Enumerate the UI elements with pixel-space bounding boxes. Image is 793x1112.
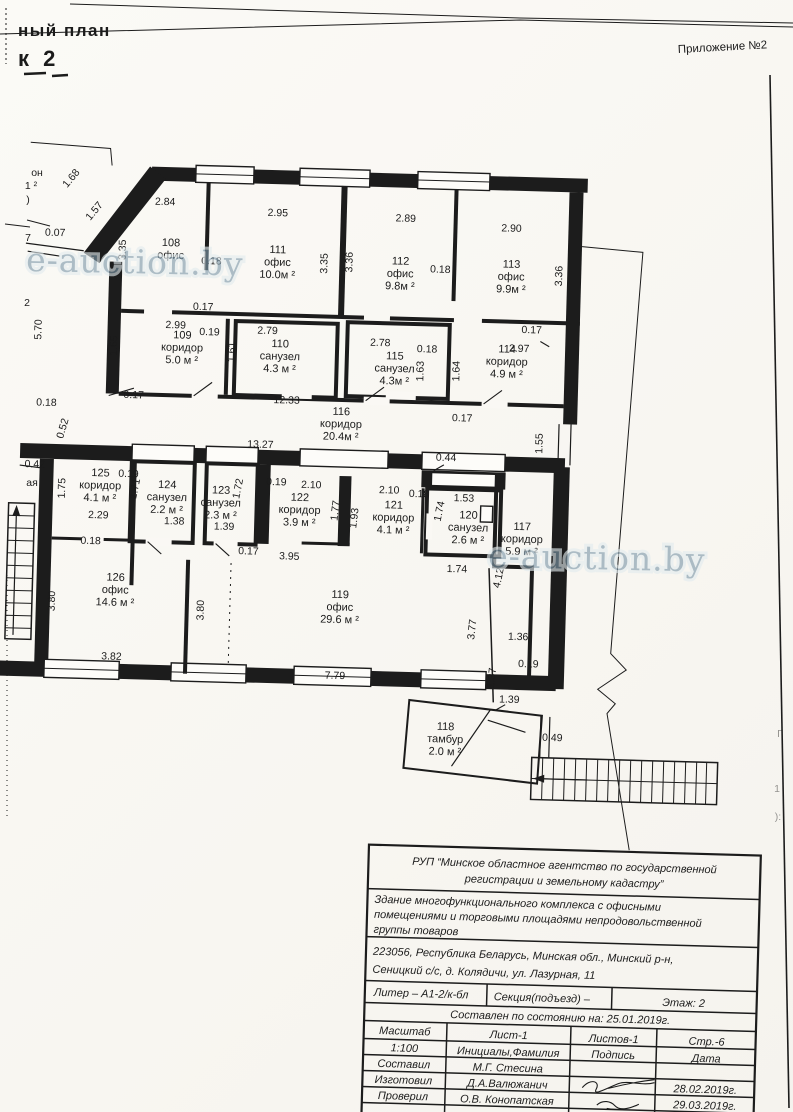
dimension-label: 0.18 bbox=[80, 535, 101, 548]
room-label-120: санузел bbox=[448, 522, 489, 535]
room-label-115: 115 bbox=[386, 350, 404, 362]
page-title-fragment: ный план bbox=[18, 21, 111, 40]
dimension-label: 2.10 bbox=[379, 484, 400, 497]
dimension-label: 1.74 bbox=[447, 563, 468, 576]
titleblock-col-signature: Подпись bbox=[591, 1049, 635, 1062]
dimension-label: 0.49 bbox=[542, 732, 563, 745]
room-label-124: 124 bbox=[158, 479, 177, 492]
page-header: ный план к 2 Приложение №2 bbox=[18, 21, 767, 76]
room-label-109: 5.0 м ² bbox=[165, 354, 198, 367]
dimension-label: 0.52 bbox=[54, 417, 71, 440]
room-label-121: 121 bbox=[384, 499, 403, 512]
room-label-119: 119 bbox=[331, 589, 349, 601]
dimension-label: 1.53 bbox=[454, 492, 475, 505]
room-label-110: 4.3 м ² bbox=[263, 363, 296, 376]
dimension-label: 0.17 bbox=[123, 389, 144, 402]
room-label-122: 3.9 м ² bbox=[283, 516, 316, 529]
titleblock-address-line2: Сеницкий с/с, д. Колядичи, ул. Лазурная,… bbox=[372, 964, 595, 982]
room-label-113: 113 bbox=[503, 258, 521, 270]
scan-crease-line bbox=[0, 20, 793, 34]
room-label-119: 29.6 м ² bbox=[320, 613, 359, 626]
dimension-label: 1.39 bbox=[499, 694, 520, 707]
edge-fragment: ая bbox=[26, 477, 38, 489]
room-label-123: санузел bbox=[200, 497, 241, 510]
dimension-label: 1.93 bbox=[347, 507, 361, 529]
room-label-115: санузел bbox=[374, 362, 415, 375]
dimension-label: 0.17 bbox=[193, 301, 214, 314]
page-number-fragment: к 2 bbox=[18, 46, 59, 71]
titleblock-floor: Этаж: 2 bbox=[662, 997, 705, 1010]
titleblock-scale-value: 1:100 bbox=[390, 1042, 419, 1055]
dimension-label: 1.37 bbox=[485, 667, 499, 689]
edge-wall-fragments bbox=[5, 220, 50, 227]
dimension-label: 2.78 bbox=[370, 337, 391, 350]
dimension-label: 1.61 bbox=[226, 341, 239, 362]
dimension-label: 2.29 bbox=[88, 509, 109, 522]
watermark-text: e-auction.by bbox=[488, 536, 706, 580]
dimension-label: 1.36 bbox=[508, 631, 529, 644]
page-edge-line bbox=[770, 75, 789, 1108]
dimension-label: 0.18 bbox=[36, 396, 57, 409]
room-label-121: 4.1 м ² bbox=[377, 524, 410, 537]
room-label-126: офис bbox=[102, 584, 130, 597]
room-label-125: 4.1 м ² bbox=[83, 492, 116, 505]
dimension-label: 0.17 bbox=[238, 545, 259, 558]
titleblock-role-2: Изготовил bbox=[374, 1074, 432, 1088]
room-label-113: офис bbox=[498, 271, 526, 284]
dimension-label: 2.90 bbox=[501, 222, 522, 235]
edge-fragment: 2 bbox=[24, 297, 30, 309]
edge-fragment: 1 ² bbox=[25, 180, 38, 192]
titleblock-building-line3: группы товаров bbox=[373, 924, 458, 938]
dimension-label: 0.42 bbox=[24, 458, 45, 471]
dimension-label: 2.79 bbox=[257, 325, 278, 338]
dimension-label: 3.77 bbox=[465, 618, 479, 640]
dimension-label: 3.82 bbox=[101, 650, 122, 663]
room-label-119: офис bbox=[326, 601, 354, 614]
dimension-label: 0.18 bbox=[409, 488, 430, 501]
titleblock-date-3: 29.03.2019г. bbox=[672, 1099, 737, 1112]
dimension-label: 0.17 bbox=[452, 412, 473, 425]
dimension-label: 3.80 bbox=[194, 600, 207, 621]
arrow-head bbox=[533, 774, 544, 782]
room-label-122: 122 bbox=[291, 492, 310, 505]
edge-fragment: Г bbox=[777, 728, 783, 740]
dimension-label: 2.84 bbox=[155, 196, 176, 209]
edge-fragment: он bbox=[31, 167, 43, 179]
stair-direction-arrow bbox=[13, 513, 16, 635]
edge-fragment: ): bbox=[775, 811, 781, 823]
room-label-120: 120 bbox=[459, 509, 478, 522]
room-label-112: 112 bbox=[392, 255, 410, 267]
dimension-label: 2.89 bbox=[395, 212, 416, 225]
room-label-110: 110 bbox=[271, 338, 289, 350]
room-label-109: коридор bbox=[161, 341, 203, 354]
titleblock-section: Секция(подъезд) – bbox=[494, 991, 591, 1006]
titleblock-address-line1: 223056, Республика Беларусь, Минская обл… bbox=[372, 946, 674, 966]
room-label-109: 109 bbox=[173, 329, 192, 342]
dimension-label: 5.70 bbox=[32, 319, 45, 340]
dimension-label: 12.33 bbox=[273, 394, 300, 407]
room-label-118: тамбур bbox=[427, 733, 463, 746]
dimension-label: 1.75 bbox=[56, 478, 69, 499]
room-label-125: 125 bbox=[91, 467, 110, 480]
dimension-label: 1.65 bbox=[108, 335, 121, 356]
dimension-label: 3.80 bbox=[46, 590, 59, 611]
dimension-label: 3.36 bbox=[343, 252, 356, 273]
titleblock-scale-label: Масштаб bbox=[379, 1025, 432, 1038]
arrow-head bbox=[12, 505, 20, 516]
titleblock-agency-line2: регистрации и земельному кадастру” bbox=[464, 873, 665, 891]
fold-mark bbox=[228, 563, 231, 668]
titleblock-sheet: Лист-1 bbox=[488, 1029, 527, 1042]
dimension-label: 0.18 bbox=[417, 343, 438, 356]
room-label-114: 4.9 м ² bbox=[490, 368, 523, 381]
dimension-label: 3.36 bbox=[553, 265, 566, 286]
scan-canvas: ный план к 2 Приложение №2 bbox=[0, 0, 793, 1112]
page-number-underline bbox=[24, 73, 68, 76]
title-block: РУП “Минское областное агентство по госу… bbox=[361, 845, 760, 1112]
upper-contour-line bbox=[30, 142, 113, 165]
titleblock-name-1: М.Г. Стесина bbox=[473, 1062, 543, 1076]
dimension-label: 7.79 bbox=[325, 670, 346, 683]
edge-fragment: 1 bbox=[774, 783, 780, 795]
watermarks: e-auction.by e-auction.by bbox=[26, 240, 706, 580]
dimension-label: 13.27 bbox=[247, 438, 274, 451]
dimension-label: 1.63 bbox=[414, 361, 427, 382]
dimension-label: 0.44 bbox=[436, 452, 457, 465]
scanned-floor-plan-page: ный план к 2 Приложение №2 bbox=[0, 0, 793, 1112]
dimension-label: 1.68 bbox=[60, 167, 82, 191]
titleblock-role-1: Составил bbox=[377, 1058, 430, 1071]
room-label-124: санузел bbox=[147, 491, 188, 504]
room-label-126: 126 bbox=[106, 572, 125, 585]
annex-label: Приложение №2 bbox=[678, 39, 768, 56]
room-label-122: коридор bbox=[278, 504, 320, 517]
room-label-118: 118 bbox=[437, 721, 455, 733]
dimension-label: 0.19 bbox=[266, 476, 287, 489]
right-staircase bbox=[531, 757, 718, 804]
room-label-114: коридор bbox=[486, 356, 528, 369]
dimension-label: 0.07 bbox=[45, 227, 66, 240]
room-label-111: офис bbox=[264, 256, 292, 269]
room-label-114: 114 bbox=[498, 343, 516, 355]
titleblock-sheets: Листов-1 bbox=[588, 1033, 639, 1046]
room-label-116: 20.4м ² bbox=[323, 430, 359, 443]
titleblock-agency-line1: РУП “Минское областное агентство по госу… bbox=[412, 856, 717, 877]
left-staircase bbox=[5, 503, 35, 640]
room-label-110: санузел bbox=[260, 350, 301, 363]
exterior-walls bbox=[0, 142, 589, 692]
room-label-111: 111 bbox=[269, 244, 286, 256]
titleblock-liter: Литер – А1-2/к-бл bbox=[373, 987, 469, 1002]
dimension-label: 1.74 bbox=[432, 500, 448, 523]
room-label-120: 2.6 м ² bbox=[451, 534, 484, 547]
dimension-label: 3.35 bbox=[318, 253, 331, 274]
titleblock-date-2: 28.02.2019г. bbox=[672, 1083, 737, 1097]
room-label-123: 123 bbox=[212, 484, 231, 497]
room-label-113: 9.9м ² bbox=[496, 283, 526, 296]
entrance-vestibule bbox=[403, 700, 550, 784]
room-label-117: 117 bbox=[513, 521, 531, 533]
room-label-124: 2.2 м ² bbox=[150, 504, 183, 517]
room-label-118: 2.0 м ² bbox=[428, 746, 461, 759]
stair-direction-arrow bbox=[541, 779, 587, 780]
dimension-label: 0.17 bbox=[521, 324, 542, 337]
dimension-label: 1.72 bbox=[230, 477, 246, 500]
titleblock-col-date: Дата bbox=[689, 1053, 720, 1066]
dimension-label: 2.95 bbox=[267, 207, 288, 220]
scan-crease-line bbox=[70, 4, 793, 23]
dimension-label: 0.18 bbox=[430, 263, 451, 276]
dimension-label: 1.77 bbox=[328, 500, 342, 522]
room-label-121: коридор bbox=[372, 511, 414, 524]
dimension-label: 1.38 bbox=[164, 515, 185, 528]
room-label-116: коридор bbox=[320, 418, 362, 431]
room-label-111: 10.0м ² bbox=[259, 269, 295, 282]
room-label-126: 14.6 м ² bbox=[95, 596, 134, 609]
dimension-label: 0.19 bbox=[518, 658, 539, 671]
room-label-125: коридор bbox=[79, 479, 121, 492]
titleblock-role-3: Проверил bbox=[378, 1090, 429, 1103]
titleblock-page-no: Стр.-6 bbox=[688, 1036, 725, 1049]
dimension-label: 1.64 bbox=[450, 361, 463, 382]
room-label-115: 4.3м ² bbox=[379, 375, 409, 388]
room-label-116: 116 bbox=[332, 406, 350, 418]
watermark-text: e-auction.by bbox=[26, 240, 244, 284]
room-label-112: офис bbox=[387, 268, 415, 281]
dimension-label: 1.57 bbox=[83, 199, 105, 223]
dimension-label: 1.55 bbox=[533, 433, 546, 454]
room-label-123: 2.3 м ² bbox=[204, 509, 237, 522]
dimension-label: 1.39 bbox=[214, 520, 235, 533]
dimension-label: 0.19 bbox=[199, 326, 220, 339]
dimension-label: 3.95 bbox=[279, 550, 300, 563]
titleblock-name-2: Д.А.Валюжанич bbox=[465, 1077, 548, 1091]
edge-fragment: ) bbox=[26, 194, 30, 206]
dimension-label: 2.10 bbox=[301, 479, 322, 492]
room-label-112: 9.8м ² bbox=[385, 280, 415, 293]
signature-2 bbox=[582, 1078, 654, 1094]
